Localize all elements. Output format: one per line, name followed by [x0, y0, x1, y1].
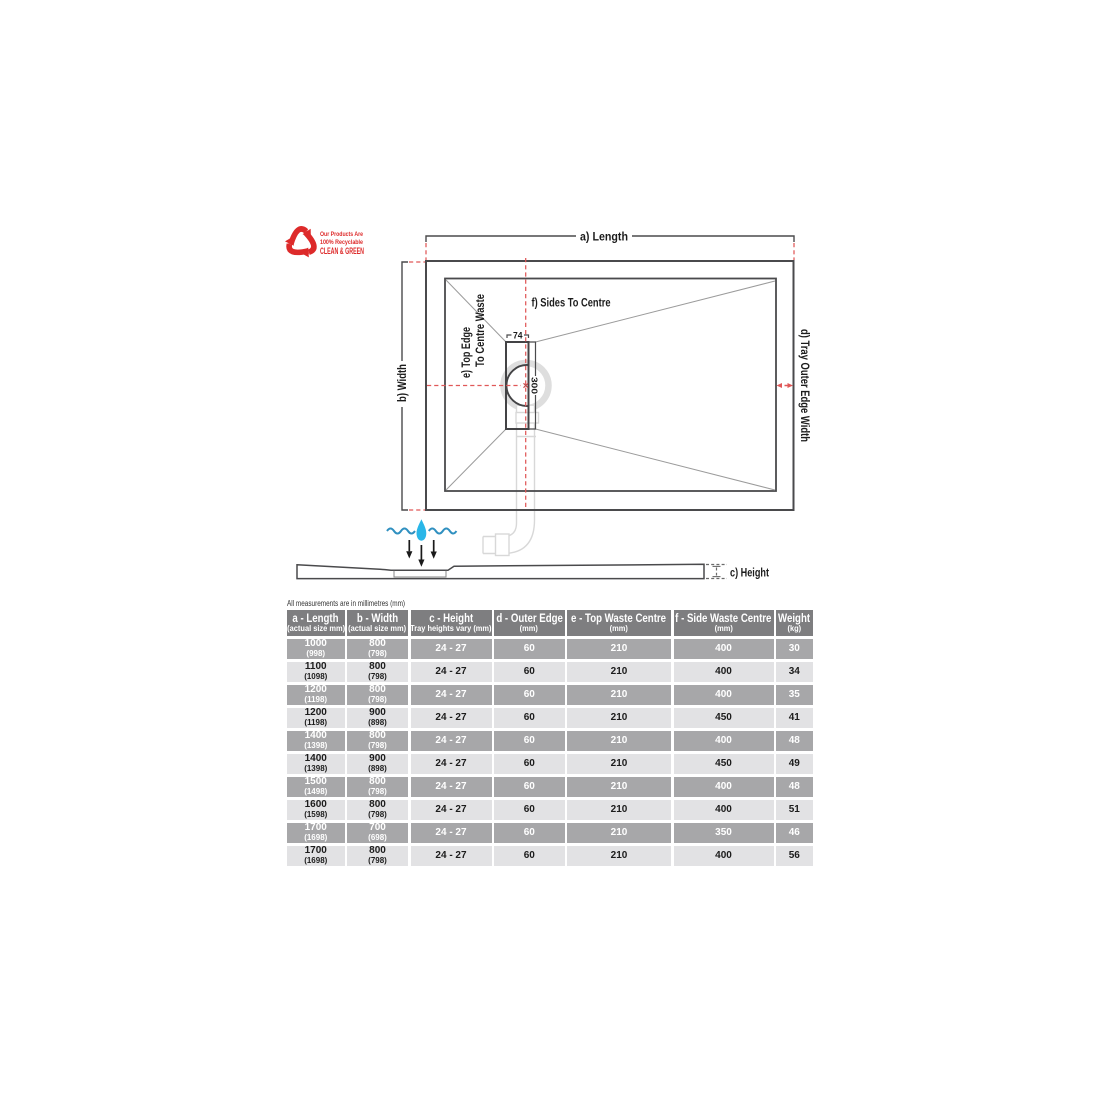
- svg-text:Our Products Are: Our Products Are: [320, 231, 363, 238]
- svg-text:d) Tray Outer Edge Width: d) Tray Outer Edge Width: [798, 329, 812, 442]
- svg-text:c) Height: c) Height: [730, 566, 769, 580]
- svg-text:To Centre Waste: To Centre Waste: [473, 294, 487, 367]
- svg-text:a) Length: a) Length: [580, 230, 628, 244]
- svg-text:100% Recyclable: 100% Recyclable: [320, 239, 363, 246]
- svg-text:74: 74: [513, 331, 523, 341]
- svg-text:b) Width: b) Width: [395, 364, 409, 402]
- svg-text:CLEAN & GREEN: CLEAN & GREEN: [320, 246, 364, 256]
- svg-text:300: 300: [530, 377, 540, 394]
- svg-text:e) Top Edge: e) Top Edge: [459, 327, 473, 378]
- svg-text:f) Sides To Centre: f) Sides To Centre: [532, 296, 611, 310]
